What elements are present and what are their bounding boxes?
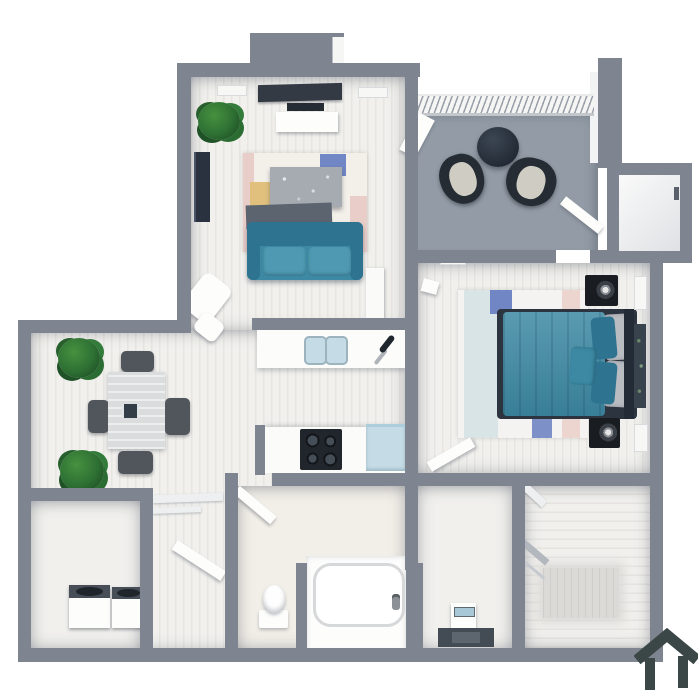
vanity-mirror [454,607,475,617]
tub-right-wall [406,563,423,652]
storage-closet-door [674,187,679,200]
dining-chair [121,351,154,372]
sofa-back [247,222,363,246]
bath-mat-inner [452,632,480,643]
sofa-armrest [350,222,363,280]
air-vent-icon [358,87,388,98]
wall-art-icon [194,152,210,222]
speaker-icon [589,418,620,448]
throw-pillow [569,346,598,386]
closet-divider-wall [512,473,525,662]
tub-faucet-icon [392,594,400,610]
dryer-lid-glass [117,589,140,597]
hall-right-wall [225,473,238,662]
bottom-exterior-wall [18,648,663,662]
toilet-bowl [263,585,285,613]
tub-left-wall [296,563,307,652]
kitchen-island-back-wall [252,318,405,330]
balcony-railing [412,94,594,116]
dining-chair [88,400,109,433]
coffee-table [270,167,342,207]
living-left-wall [177,63,191,332]
entry-door [333,37,344,64]
sofa-armrest [247,222,260,280]
sofa-cushion [263,247,306,276]
dining-top-wall [18,320,191,333]
sofa-cushion [308,247,351,276]
laundry-top-wall [25,488,153,501]
tv-icon [258,83,342,102]
potted-plant-icon [58,338,100,378]
patio-table [477,127,519,167]
bedroom-bottom-wall [405,473,663,486]
bedroom-balcony-doorway [556,250,590,263]
soundbar-icon [287,103,324,111]
kitchen-sink-basin [325,336,348,365]
potted-plant-icon [60,450,104,492]
laundry-right-wall [140,488,153,662]
bathroom-top-wall [272,473,405,486]
living-top-wall [177,63,420,77]
east-exterior-wall [650,250,663,662]
air-vent-icon [634,276,647,310]
table-centerpiece [122,404,139,418]
dining-chair [165,398,190,435]
headboard-panel [634,324,646,408]
walkin-closet-floor [525,486,650,648]
kitchen-sink-basin [304,336,327,365]
dining-chair [118,451,153,474]
washer-lid-glass [76,587,103,596]
potted-plant-icon [198,102,240,140]
air-vent-icon [217,85,247,96]
storage-closet-interior [619,175,680,251]
balcony-right-wall [598,58,622,168]
air-vent-icon [634,424,648,452]
closet-floor-mat [543,568,619,618]
center-spine-wall [405,77,418,477]
entry-bump-wall [250,33,344,65]
refrigerator [366,424,405,471]
floor-plan-canvas [0,0,700,700]
vanity-divider-wall [405,473,418,570]
kitchen-stub-wall [255,425,265,475]
speaker-icon [585,275,618,306]
stove-icon [300,429,342,470]
wall-stub [366,268,384,322]
media-console [276,112,338,132]
house-logo-icon [634,628,698,692]
headboard [624,309,634,419]
